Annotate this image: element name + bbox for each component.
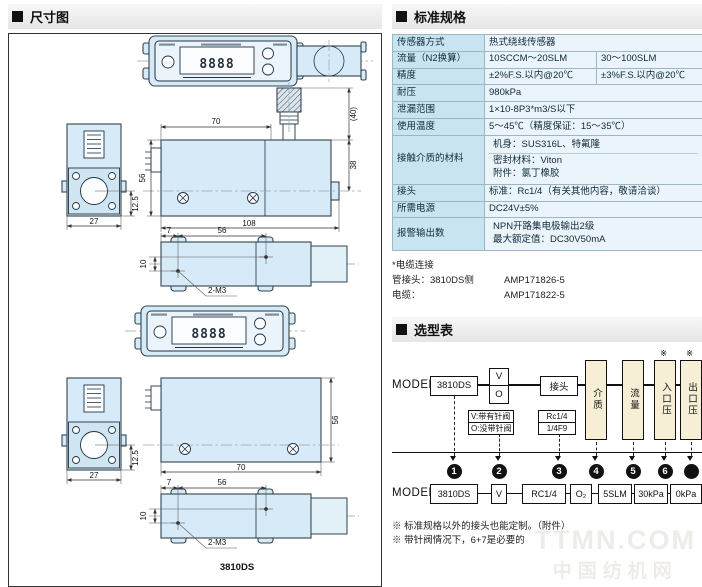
table-row: 使用温度 5～45℃（精度保证：15～35℃） xyxy=(393,119,702,136)
dim-outlet-height: 38 xyxy=(349,160,358,169)
example-model: 3810DS xyxy=(430,484,478,504)
table-row: 耐压 980kPa xyxy=(393,85,702,102)
medium-box: 介质 xyxy=(585,360,607,440)
cable-row-value: AMP171826-5 xyxy=(504,273,565,288)
outlet-pressure-box: 出口压 xyxy=(680,360,702,440)
spec-value: 标准：Rc1/4（有关其他内容，敬请洽谈） xyxy=(485,184,702,201)
spec-label: 所需电源 xyxy=(393,201,485,218)
dim-body-width-2: 70 xyxy=(237,463,246,472)
model-section-title: 选型表 xyxy=(414,320,453,339)
model-selection-diagram: MODEL 3810DS V O 接头 介质 流量 入口压 出口压 ※ ※ V:… xyxy=(392,352,702,510)
dim-valve-height: (40) xyxy=(349,107,358,122)
spec-label: 接触介质的材料 xyxy=(393,135,485,184)
example-fitting: RC1/4 xyxy=(522,484,566,504)
cable-note-title: *电缆连接 xyxy=(392,258,702,273)
cable-row-value: AMP171822-5 xyxy=(504,288,565,303)
spec-value-line: 最大额定值：DC30V50mA xyxy=(489,234,698,248)
dimension-drawing: 8888 xyxy=(9,34,381,584)
spec-value-line: 密封材料：Viton xyxy=(489,155,698,168)
down-arrow-icon xyxy=(661,456,667,461)
drop-line xyxy=(691,442,692,456)
spec-section-title: 标准规格 xyxy=(414,7,466,26)
list-item: 管接头：3810DS侧 AMP171826-5 xyxy=(392,273,702,288)
set1-side-view: 70 56 108 (40) 38 xyxy=(138,82,361,232)
dim-hole-label-2: 2-M3 xyxy=(208,538,227,547)
dim-hole-pitch-2: 56 xyxy=(218,478,227,487)
spec-section: 标准规格 传感器方式 热式绕线传感器 流量（N2换算） 10SCCM～20SLM… xyxy=(392,4,702,549)
spec-value-line: NPN开路集电极输出2级 xyxy=(489,220,698,234)
down-arrow-icon xyxy=(687,456,693,461)
spec-label: 传感器方式 xyxy=(393,35,485,52)
set1-top-view xyxy=(137,36,373,86)
spec-label: 接头 xyxy=(393,184,485,201)
cable-row-label: 管接头：3810DS侧 xyxy=(392,273,504,288)
step-circle-1: 1 xyxy=(447,464,462,479)
down-arrow-icon xyxy=(495,456,501,461)
table-row: 报警输出数 NPN开路集电极输出2级 最大额定值：DC30V50mA xyxy=(393,218,702,251)
drop-line xyxy=(633,442,634,456)
fitting-box: 接头 xyxy=(540,376,578,396)
dim-hole-offset-x: 7 xyxy=(167,226,172,235)
spec-value: 10SCCM～20SLM xyxy=(485,51,597,68)
set1-end-view: 27 12.5 xyxy=(62,124,140,230)
spec-label: 泄漏范围 xyxy=(393,102,485,119)
example-outlet: 0kPa xyxy=(670,484,702,504)
step-circle-6: 6 xyxy=(658,464,673,479)
spec-value: 热式绕线传感器 xyxy=(485,35,702,52)
spec-label: 报警输出数 xyxy=(393,218,485,251)
set2-side-view: 70 56 xyxy=(143,378,340,476)
table-row: 接触介质的材料 机身：SUS316L、特氟隆 密封材料：Viton 附件：氯丁橡… xyxy=(393,135,702,184)
valve-note-with: V:带有针阀 xyxy=(469,411,513,423)
valve-option-v: V xyxy=(490,369,508,387)
drop-line xyxy=(596,442,597,456)
step-circle-7 xyxy=(684,464,699,479)
star-mark: ※ xyxy=(686,348,693,359)
model-section-header: 选型表 xyxy=(392,317,702,342)
dimension-section-header: 尺寸图 xyxy=(8,4,382,29)
watermark-line2: 中国纺机网 xyxy=(535,556,696,583)
spec-value: ±2%F.S.以内@20℃ xyxy=(485,68,597,85)
step-circle-4: 4 xyxy=(589,464,604,479)
step-circle-5: 5 xyxy=(626,464,641,479)
spec-value-line: 机身：SUS316L、特氟隆 xyxy=(489,137,698,154)
step-circle-3: 3 xyxy=(552,464,567,479)
set2-front-view xyxy=(125,306,305,356)
note-line: ※ 标准规格以外的接头也能定制。（附件） xyxy=(392,520,702,535)
table-row: 接头 标准：Rc1/4（有关其他内容，敬请洽谈） xyxy=(393,184,702,201)
spec-table: 传感器方式 热式绕线传感器 流量（N2换算） 10SCCM～20SLM 30～1… xyxy=(392,34,702,251)
valve-option-box: V O xyxy=(489,368,509,404)
valve-option-o: O xyxy=(490,386,508,403)
table-row: 泄漏范围 1×10-8P3*m3/S以下 xyxy=(393,102,702,119)
example-inlet: 30kPa xyxy=(634,484,668,504)
down-arrow-icon xyxy=(555,456,561,461)
down-arrow-icon xyxy=(629,456,635,461)
section-bullet-icon xyxy=(12,11,23,22)
table-row: 传感器方式 热式绕线传感器 xyxy=(393,35,702,52)
fitting-option-box: Rc1/4 1/4F9 xyxy=(538,410,576,435)
dim-top-width: 70 xyxy=(212,117,221,126)
set2-bottom-view: 7 56 10 2-M3 xyxy=(139,478,359,548)
flow-rate-box: 流量 xyxy=(622,360,644,440)
spec-value: 980kPa xyxy=(485,85,702,102)
valve-note-without: O:没带针阀 xyxy=(469,423,513,434)
table-row: 精度 ±2%F.S.以内@20℃ ±3%F.S.以内@20℃ xyxy=(393,68,702,85)
table-row: 所需电源 DC24V±5% xyxy=(393,201,702,218)
divider-line xyxy=(392,452,702,453)
spec-value: NPN开路集电极输出2级 最大额定值：DC30V50mA xyxy=(485,218,702,251)
dim-hole-offset-y-2: 10 xyxy=(139,511,148,520)
section-bullet-icon xyxy=(396,324,407,335)
step-circle-2: 2 xyxy=(492,464,507,479)
dim-body-height: 56 xyxy=(138,173,147,182)
spec-label: 耐压 xyxy=(393,85,485,102)
example-medium: O₂ xyxy=(570,484,592,504)
down-arrow-icon xyxy=(592,456,598,461)
fitting-opt-14f9: 1/4F9 xyxy=(539,423,575,434)
set2-end-view: 27 12.5 xyxy=(62,378,140,484)
dimension-section-title: 尺寸图 xyxy=(30,7,69,26)
star-mark: ※ xyxy=(660,348,667,359)
dim-port-offset: 12.5 xyxy=(131,196,140,212)
down-arrow-icon xyxy=(450,456,456,461)
model-label: MODEL xyxy=(392,379,435,391)
section-bullet-icon xyxy=(396,11,407,22)
dim-hole-label: 2-M3 xyxy=(208,286,227,295)
dim-total-length: 108 xyxy=(242,219,256,228)
spec-label: 流量（N2换算） xyxy=(393,51,485,68)
dim-hole-offset-y: 10 xyxy=(139,259,148,268)
spec-value: DC24V±5% xyxy=(485,201,702,218)
example-flow: 5SLM xyxy=(598,484,632,504)
cable-row-label: 电缆： xyxy=(392,288,504,303)
model-notes: ※ 标准规格以外的接头也能定制。（附件） ※ 带针阀情况下，6+7是必要的 xyxy=(392,520,702,549)
spec-value: 5～45℃（精度保证：15～35℃） xyxy=(485,119,702,136)
cable-connection-note: *电缆连接 管接头：3810DS侧 AMP171826-5 电缆： AMP171… xyxy=(392,258,702,304)
spec-value: 30～100SLM xyxy=(597,51,702,68)
inlet-pressure-box: 入口压 xyxy=(654,360,676,440)
model-label: MODEL xyxy=(392,487,435,499)
spec-section-header: 标准规格 xyxy=(392,4,702,29)
dimension-section: 尺寸图 xyxy=(8,4,382,587)
valve-option-note-box: V:带有针阀 O:没带针阀 xyxy=(468,410,514,435)
dim-hole-pitch: 56 xyxy=(218,226,227,235)
note-line: ※ 带针阀情况下，6+7是必要的 xyxy=(392,534,702,549)
fitting-opt-rc14: Rc1/4 xyxy=(539,411,575,423)
list-item: 电缆： AMP171822-5 xyxy=(392,288,702,303)
dim-end-width-2: 27 xyxy=(90,471,99,480)
spec-value-line: 附件：氯丁橡胶 xyxy=(489,168,698,182)
spec-label: 精度 xyxy=(393,68,485,85)
spec-value: 1×10-8P3*m3/S以下 xyxy=(485,102,702,119)
dim-body-height-2: 56 xyxy=(331,415,340,424)
drop-line xyxy=(454,396,455,456)
spec-value: 机身：SUS316L、特氟隆 密封材料：Viton 附件：氯丁橡胶 xyxy=(485,135,702,184)
model-caption: 3810DS xyxy=(220,562,254,573)
dimension-drawing-panel: 8888 xyxy=(8,33,382,587)
spec-label: 使用温度 xyxy=(393,119,485,136)
spec-value: ±3%F.S.以内@20℃ xyxy=(597,68,702,85)
drop-line xyxy=(665,442,666,456)
set1-bottom-view: 7 56 10 2-M3 xyxy=(139,226,359,296)
table-row: 流量（N2换算） 10SCCM～20SLM 30～100SLM xyxy=(393,51,702,68)
example-valve: V xyxy=(491,484,507,504)
dim-end-width: 27 xyxy=(90,217,99,226)
datasheet-page: { "dimension_section": { "title": "尺寸图",… xyxy=(0,0,702,587)
dim-port-offset-2: 12.5 xyxy=(131,450,140,466)
base-model-box: 3810DS xyxy=(430,376,478,396)
dim-hole-offset-x-2: 7 xyxy=(167,478,172,487)
